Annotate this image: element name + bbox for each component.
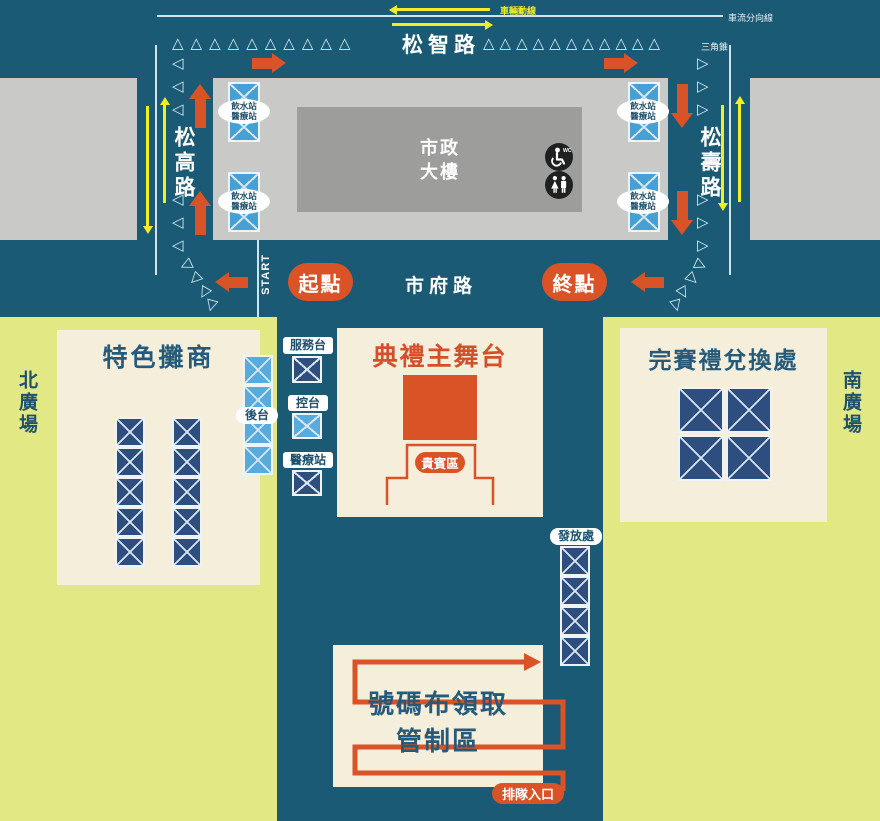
cone-icon: ▷: [668, 298, 685, 313]
cone-icon: △: [632, 36, 644, 51]
control-desk-label: 控台: [288, 395, 328, 411]
road-name-right: 松壽路: [694, 126, 724, 201]
vendor-stall: [172, 447, 202, 477]
cone-col-right-upper: ▷ ▷▷: [697, 56, 709, 117]
vendor-stall-column: [115, 417, 145, 567]
exchange-tent: [678, 387, 724, 433]
distribution-label: 發放處: [550, 528, 602, 545]
cone-icon: △: [615, 36, 627, 51]
vendor-stall: [115, 417, 145, 447]
service-desk-label: 服務台: [283, 337, 333, 354]
cone-icon: △: [265, 36, 277, 51]
cone-row-top-right: △ △△△△△△△△△△: [483, 36, 660, 51]
distribution-tents: [560, 546, 590, 666]
course-arrow-down: [671, 191, 693, 235]
cone-icon: ◁: [172, 79, 184, 94]
left-road-flow-arrow-down: [146, 106, 149, 226]
course-arrow-right: [604, 53, 638, 73]
cone-icon: ◁: [172, 238, 184, 253]
cone-icon: △: [209, 36, 221, 51]
cone-icon: △: [516, 36, 528, 51]
accessible-wc-icon: WC: [545, 143, 573, 171]
city-block-left: [0, 78, 137, 240]
medical-station-tent: [292, 470, 322, 496]
cone-icon: ▷: [697, 56, 709, 71]
course-arrow-left: [215, 272, 248, 292]
vendor-stall: [172, 417, 202, 447]
road-name-top: 松智路: [402, 29, 480, 59]
vendor-stall-column: [172, 417, 202, 567]
cone-icon: △: [483, 36, 495, 51]
vendor-stall: [172, 507, 202, 537]
distribution-tent: [560, 636, 590, 666]
cone-icon: △: [566, 36, 578, 51]
right-road-flow-arrow-up: [738, 104, 741, 202]
exchange-tent: [726, 387, 772, 433]
station-label: 飲水站醫療站: [617, 99, 669, 124]
exchange-tents: [678, 387, 772, 481]
city-block-right: [750, 78, 880, 240]
right-road-flow-arrow-down: [721, 105, 724, 203]
cone-icon: ◁: [202, 298, 219, 313]
start-line: [257, 240, 259, 318]
exchange-tent: [726, 435, 772, 481]
distribution-tent: [560, 546, 590, 576]
cone-col-left-lower: ◁ ◁◁: [172, 192, 184, 253]
south-plaza-label: 南廣場: [837, 370, 864, 436]
stage-platform: [403, 375, 477, 440]
cone-row-top-left: △ △△△△△△△△△: [172, 36, 350, 51]
exchange-tent: [678, 435, 724, 481]
course-arrow-up: [189, 191, 211, 235]
cone-icon: △: [599, 36, 611, 51]
vendor-stall: [115, 537, 145, 567]
course-arrow-right: [252, 53, 286, 73]
vendor-stall: [115, 447, 145, 477]
course-arrow-down: [671, 84, 693, 128]
cone-icon: ◁: [172, 56, 184, 71]
cone-col-left-upper: ◁ ◁◁: [172, 56, 184, 117]
road-name-bottom: 市府路: [405, 271, 477, 298]
building-name: 市政大樓: [365, 136, 515, 185]
vendor-stall: [115, 477, 145, 507]
exchange-area-title: 完賽禮兌換處: [620, 341, 827, 375]
restroom-icon: [545, 171, 573, 199]
vehicle-flow-arrow-right: [392, 23, 485, 26]
vendor-stall: [172, 477, 202, 507]
cone-icon: △: [582, 36, 594, 51]
course-arrow-up: [189, 84, 211, 128]
station-label: 飲水站醫療站: [218, 99, 270, 124]
queue-entrance-badge: 排隊入口: [492, 783, 564, 804]
right-road-line: [729, 45, 731, 275]
vendor-area-title: 特色攤商: [57, 338, 260, 374]
backstage-tent: [243, 355, 273, 385]
left-road-flow-arrow-up: [163, 105, 166, 203]
left-road-line: [155, 45, 157, 275]
cone-icon: ▷: [697, 215, 709, 230]
distribution-tent: [560, 606, 590, 636]
backstage-label: 後台: [236, 407, 278, 424]
distribution-tent: [560, 576, 590, 606]
bib-area-title-line1: 號碼布領取: [333, 684, 543, 721]
road-name-left: 松高路: [168, 126, 198, 201]
backstage-tent: [243, 445, 273, 475]
vip-zone-badge: 貴賓區: [415, 452, 465, 473]
cone-icon: △: [283, 36, 295, 51]
cone-icon: △: [320, 36, 332, 51]
cone-icon: △: [191, 36, 203, 51]
cone-icon: △: [549, 36, 561, 51]
cone-icon: △: [228, 36, 240, 51]
course-arrow-left: [631, 272, 664, 292]
cone-icon: △: [302, 36, 314, 51]
medical-station-label: 醫療站: [283, 452, 333, 468]
station-label: 飲水站醫療站: [218, 189, 270, 214]
cone-col-right-lower: ▷ ▷▷: [697, 192, 709, 253]
cone-icon: △: [339, 36, 351, 51]
cone-icon: △: [500, 36, 512, 51]
cone-icon: △: [246, 36, 258, 51]
bib-area-title-line2: 管制區: [333, 721, 543, 758]
station-label: 飲水站醫療站: [617, 189, 669, 214]
vendor-stall: [172, 537, 202, 567]
lane-divider-label: 車流分向線: [728, 11, 773, 24]
cone-icon: ▷: [697, 102, 709, 117]
lane-divider-line: [157, 15, 723, 17]
north-plaza-label: 北廣場: [13, 370, 40, 436]
vehicle-route-label: 車輛動線: [500, 4, 536, 17]
cone-icon: ▷: [697, 238, 709, 253]
cone-icon: ◁: [172, 215, 184, 230]
vendor-stall: [115, 507, 145, 537]
service-desk-tent: [292, 356, 322, 383]
control-desk-tent: [292, 413, 322, 439]
vehicle-flow-arrow-left: [397, 8, 490, 11]
cone-icon: ◁: [172, 102, 184, 117]
cone-icon: △: [172, 36, 184, 51]
svg-text:WC: WC: [563, 148, 571, 154]
finish-point-badge: 終點: [542, 263, 607, 301]
start-point-badge: 起點: [288, 263, 353, 301]
stage-title: 典禮主舞台: [337, 337, 543, 373]
cone-legend-label: 三角錐: [701, 40, 728, 53]
start-text: START: [260, 254, 272, 295]
cone-icon: △: [533, 36, 545, 51]
cone-icon: ▷: [697, 79, 709, 94]
cone-icon: △: [648, 36, 660, 51]
event-venue-map: 車輛動線 車流分向線 三角錐 △ △△△△△△△△△ △ △△△△△△△△△△ …: [0, 0, 880, 821]
